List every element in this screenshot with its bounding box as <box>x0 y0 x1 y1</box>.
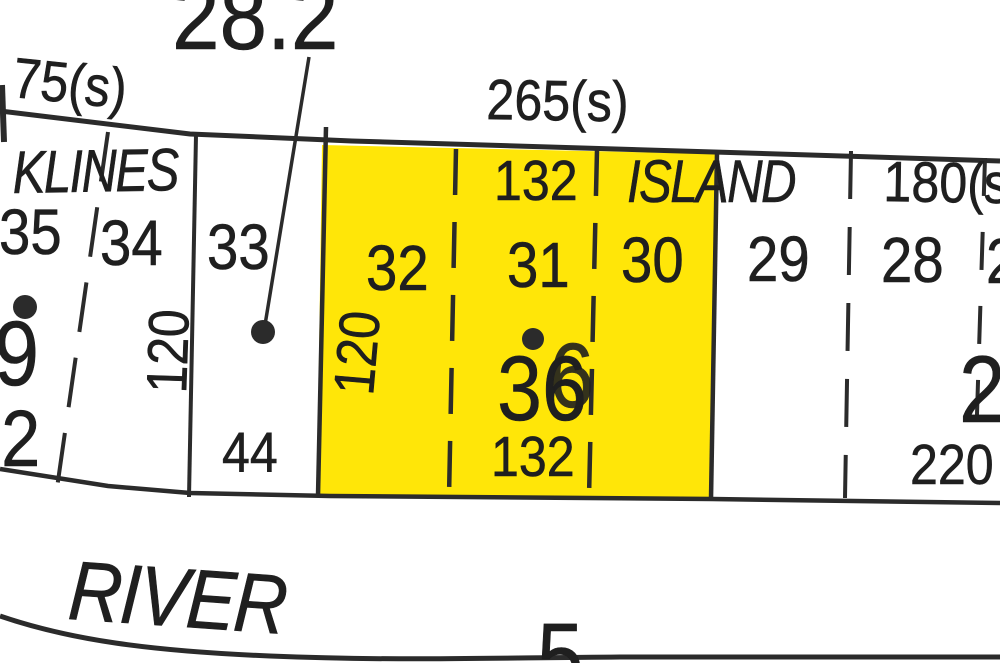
meas-28-2: 28.2 <box>172 0 338 65</box>
meas-120-left: 120 <box>139 308 199 394</box>
meas-5-partial: 5 <box>537 610 584 663</box>
name-river: RIVER <box>66 548 288 647</box>
lot-31: 31 <box>507 233 570 297</box>
map-labels: 28.275(s)265(s)180(s)KLINESISLAND3534333… <box>0 0 1000 663</box>
lot-33: 33 <box>207 215 270 279</box>
meas-220: 220 <box>910 437 994 494</box>
meas-9-partial: 9 <box>0 308 39 400</box>
meas-75s: 75(s) <box>10 50 130 119</box>
lot-34: 34 <box>100 211 163 275</box>
meas-132-top: 132 <box>494 153 578 210</box>
meas-52-partial: 52 <box>0 399 40 479</box>
name-klines: KLINES <box>12 140 178 203</box>
meas-44: 44 <box>222 425 278 482</box>
meas-120-yellow: 120 <box>326 309 390 397</box>
lot-28: 28 <box>881 228 944 292</box>
lot-29: 29 <box>747 227 810 291</box>
map-canvas: 28.275(s)265(s)180(s)KLINESISLAND3534333… <box>0 0 1000 663</box>
lot-27-partial: 2 <box>986 229 1000 293</box>
lot-30: 30 <box>621 228 684 292</box>
lot-35: 35 <box>0 200 62 264</box>
meas-265s: 265(s) <box>486 72 629 131</box>
meas-180s: 180(s) <box>883 154 1000 213</box>
meas-36-overprint: 6 <box>549 330 594 422</box>
name-island: ISLAND <box>627 152 795 212</box>
meas-2-partial: 2 <box>959 343 1000 438</box>
lot-32: 32 <box>366 236 429 300</box>
